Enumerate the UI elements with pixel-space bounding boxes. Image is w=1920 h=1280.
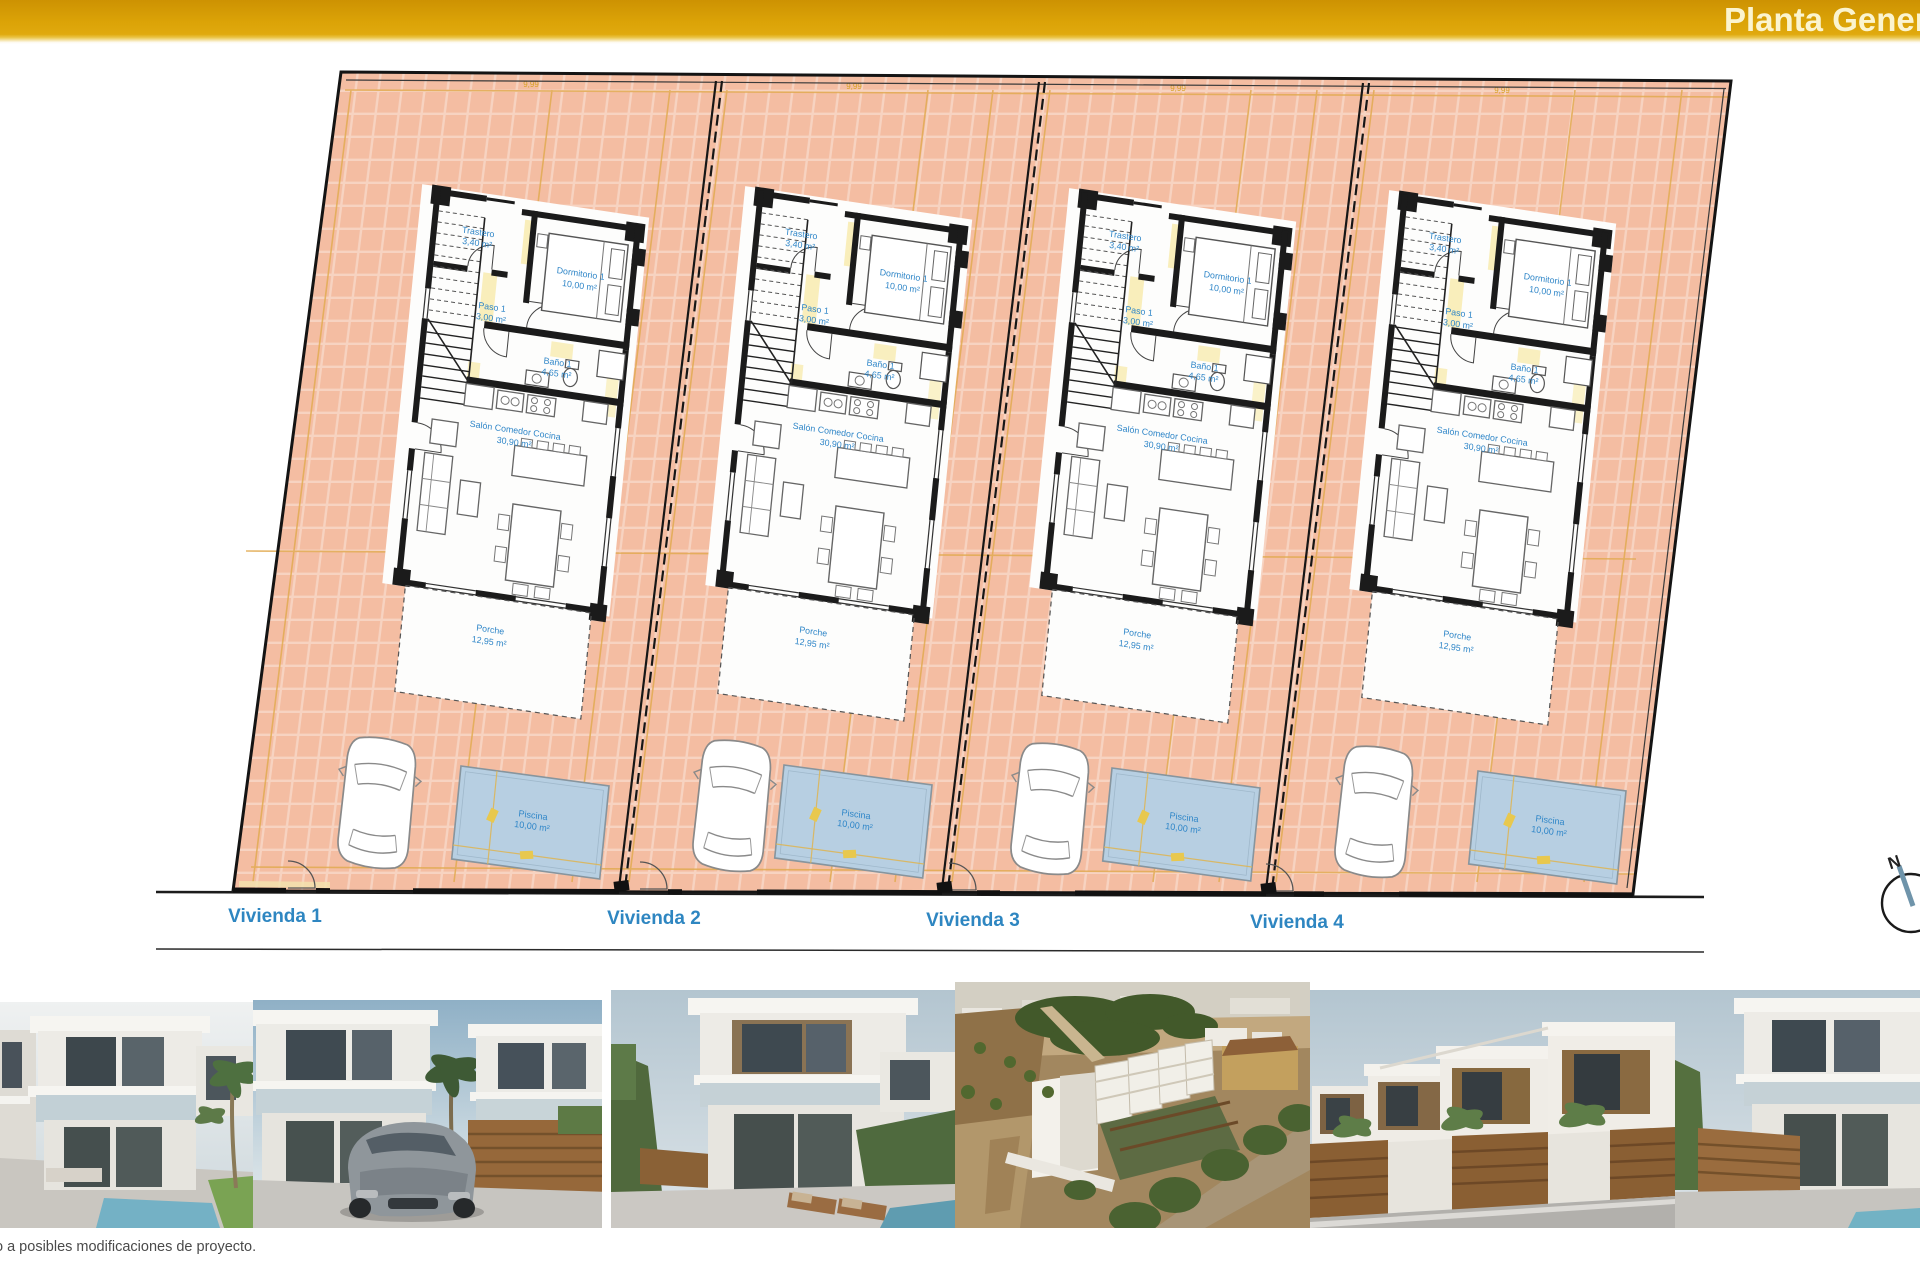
svg-text:Vivienda 1: Vivienda 1 bbox=[228, 906, 322, 927]
svg-text:Vivienda 4: Vivienda 4 bbox=[1250, 912, 1344, 933]
svg-text:o a posibles modificaciones de: o a posibles modificaciones de proyecto. bbox=[0, 1239, 256, 1255]
svg-text:Planta Gener: Planta Gener bbox=[1724, 1, 1920, 38]
svg-text:Vivienda 3: Vivienda 3 bbox=[926, 910, 1020, 931]
svg-text:Vivienda 2: Vivienda 2 bbox=[607, 908, 701, 929]
